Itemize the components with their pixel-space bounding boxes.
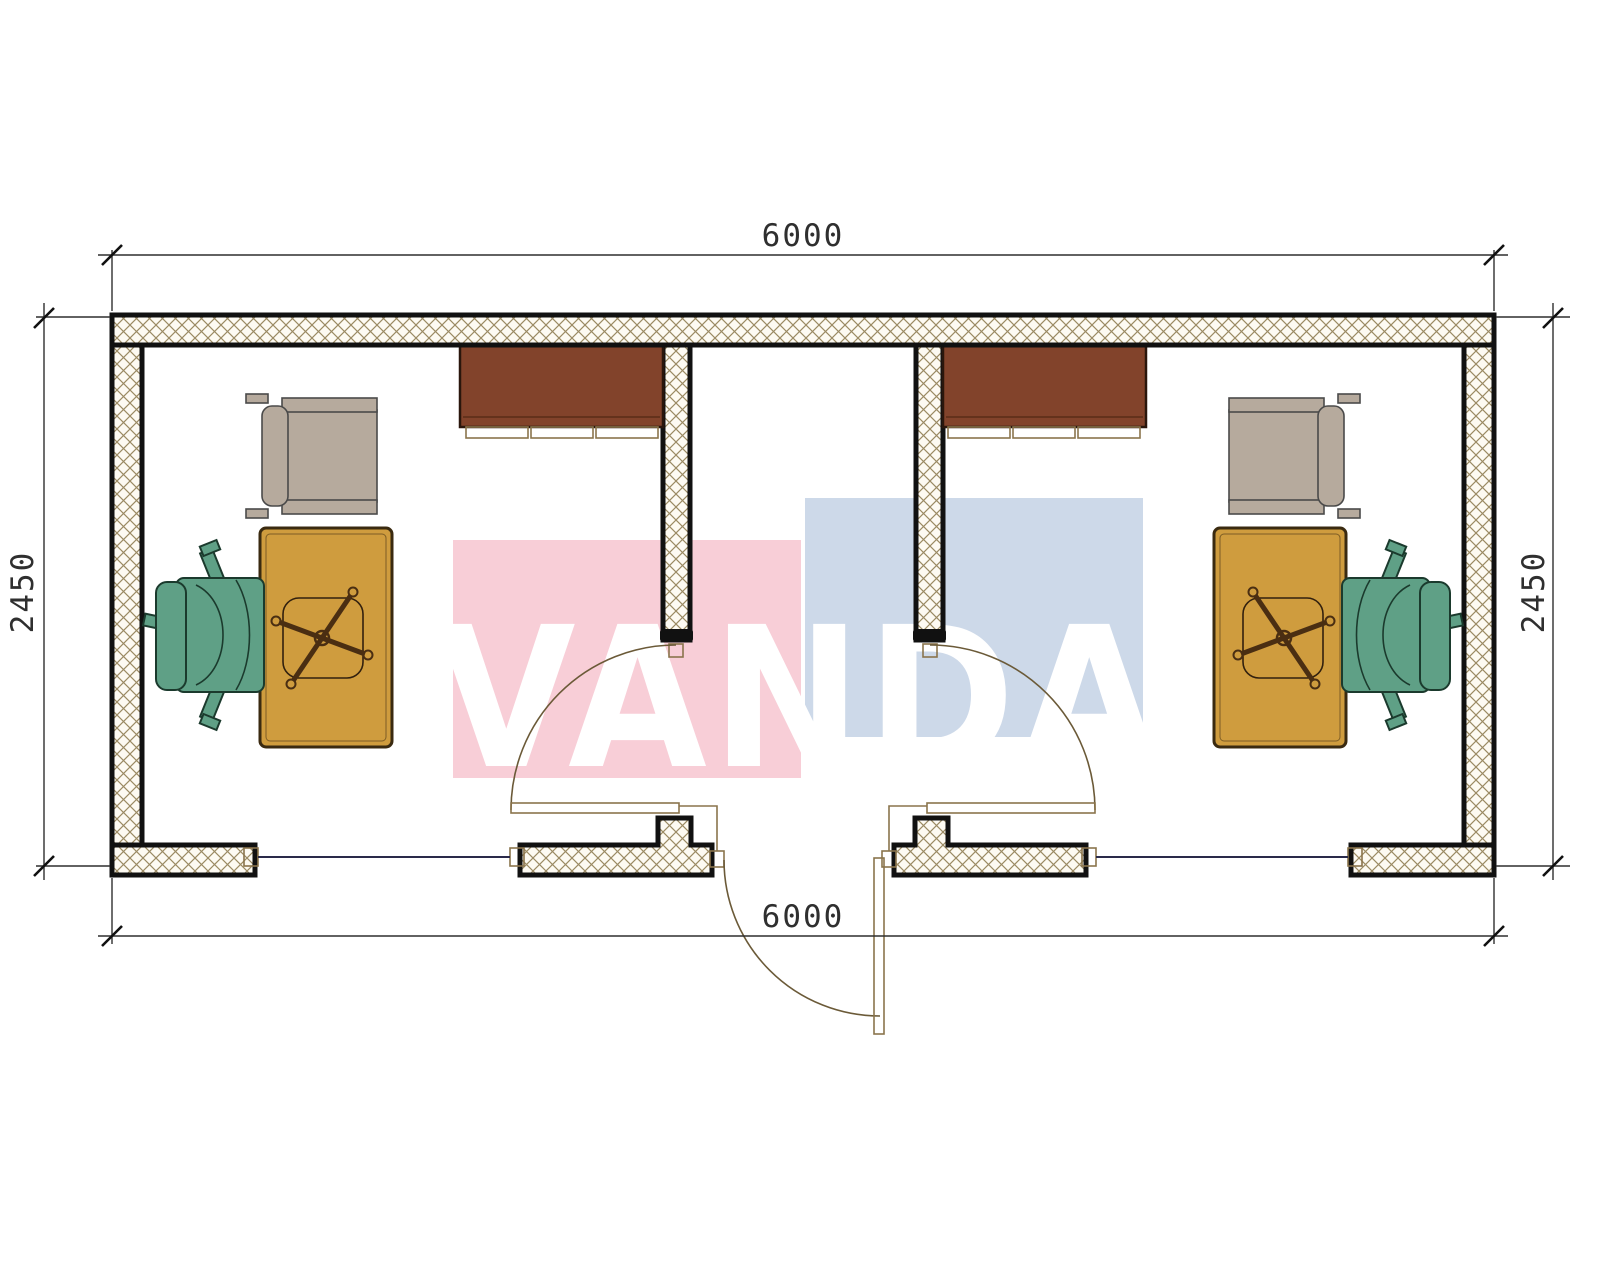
dimension-label-right: 2450 <box>1516 551 1552 634</box>
wall-cabinet <box>460 342 663 427</box>
chair-foot <box>200 714 220 730</box>
exterior-wall-left <box>112 315 142 875</box>
entrance-door-swing-arc <box>724 860 880 1016</box>
watermark-text: VANDA <box>437 586 1163 813</box>
chair-backrest <box>262 406 288 506</box>
exterior-wall-bottom-corner <box>112 845 255 875</box>
exterior-wall-bottom-segment <box>520 818 712 875</box>
visitor-armchair <box>246 394 377 518</box>
exterior-wall-top <box>112 315 1494 345</box>
chair-foot <box>200 540 220 556</box>
chair-backrest <box>156 582 186 690</box>
dimension-label-bottom: 6000 <box>762 899 845 935</box>
cabinet-drawer <box>531 427 593 438</box>
partition-wall <box>663 340 690 640</box>
floor-plan-drawing: VANDA <box>0 0 1600 1280</box>
dimension-label-top: 6000 <box>762 218 845 254</box>
dimension-label-left: 2450 <box>5 551 41 634</box>
entrance-door-leaf <box>874 858 884 1034</box>
office-chair-green <box>143 540 264 730</box>
chair-foot <box>246 394 268 403</box>
chair-foot <box>246 509 268 518</box>
cabinet-drawer <box>466 427 528 438</box>
watermark: VANDA <box>437 498 1163 813</box>
partition-wall-end-cap <box>660 629 693 642</box>
floor-plan-canvas: VANDA <box>0 0 1600 1280</box>
cabinet-drawer <box>596 427 658 438</box>
chair-armrest <box>282 398 377 412</box>
chair-seat <box>176 578 264 692</box>
chair-seat <box>282 410 377 502</box>
chair-armrest <box>282 500 377 514</box>
entrance-door <box>724 858 884 1034</box>
